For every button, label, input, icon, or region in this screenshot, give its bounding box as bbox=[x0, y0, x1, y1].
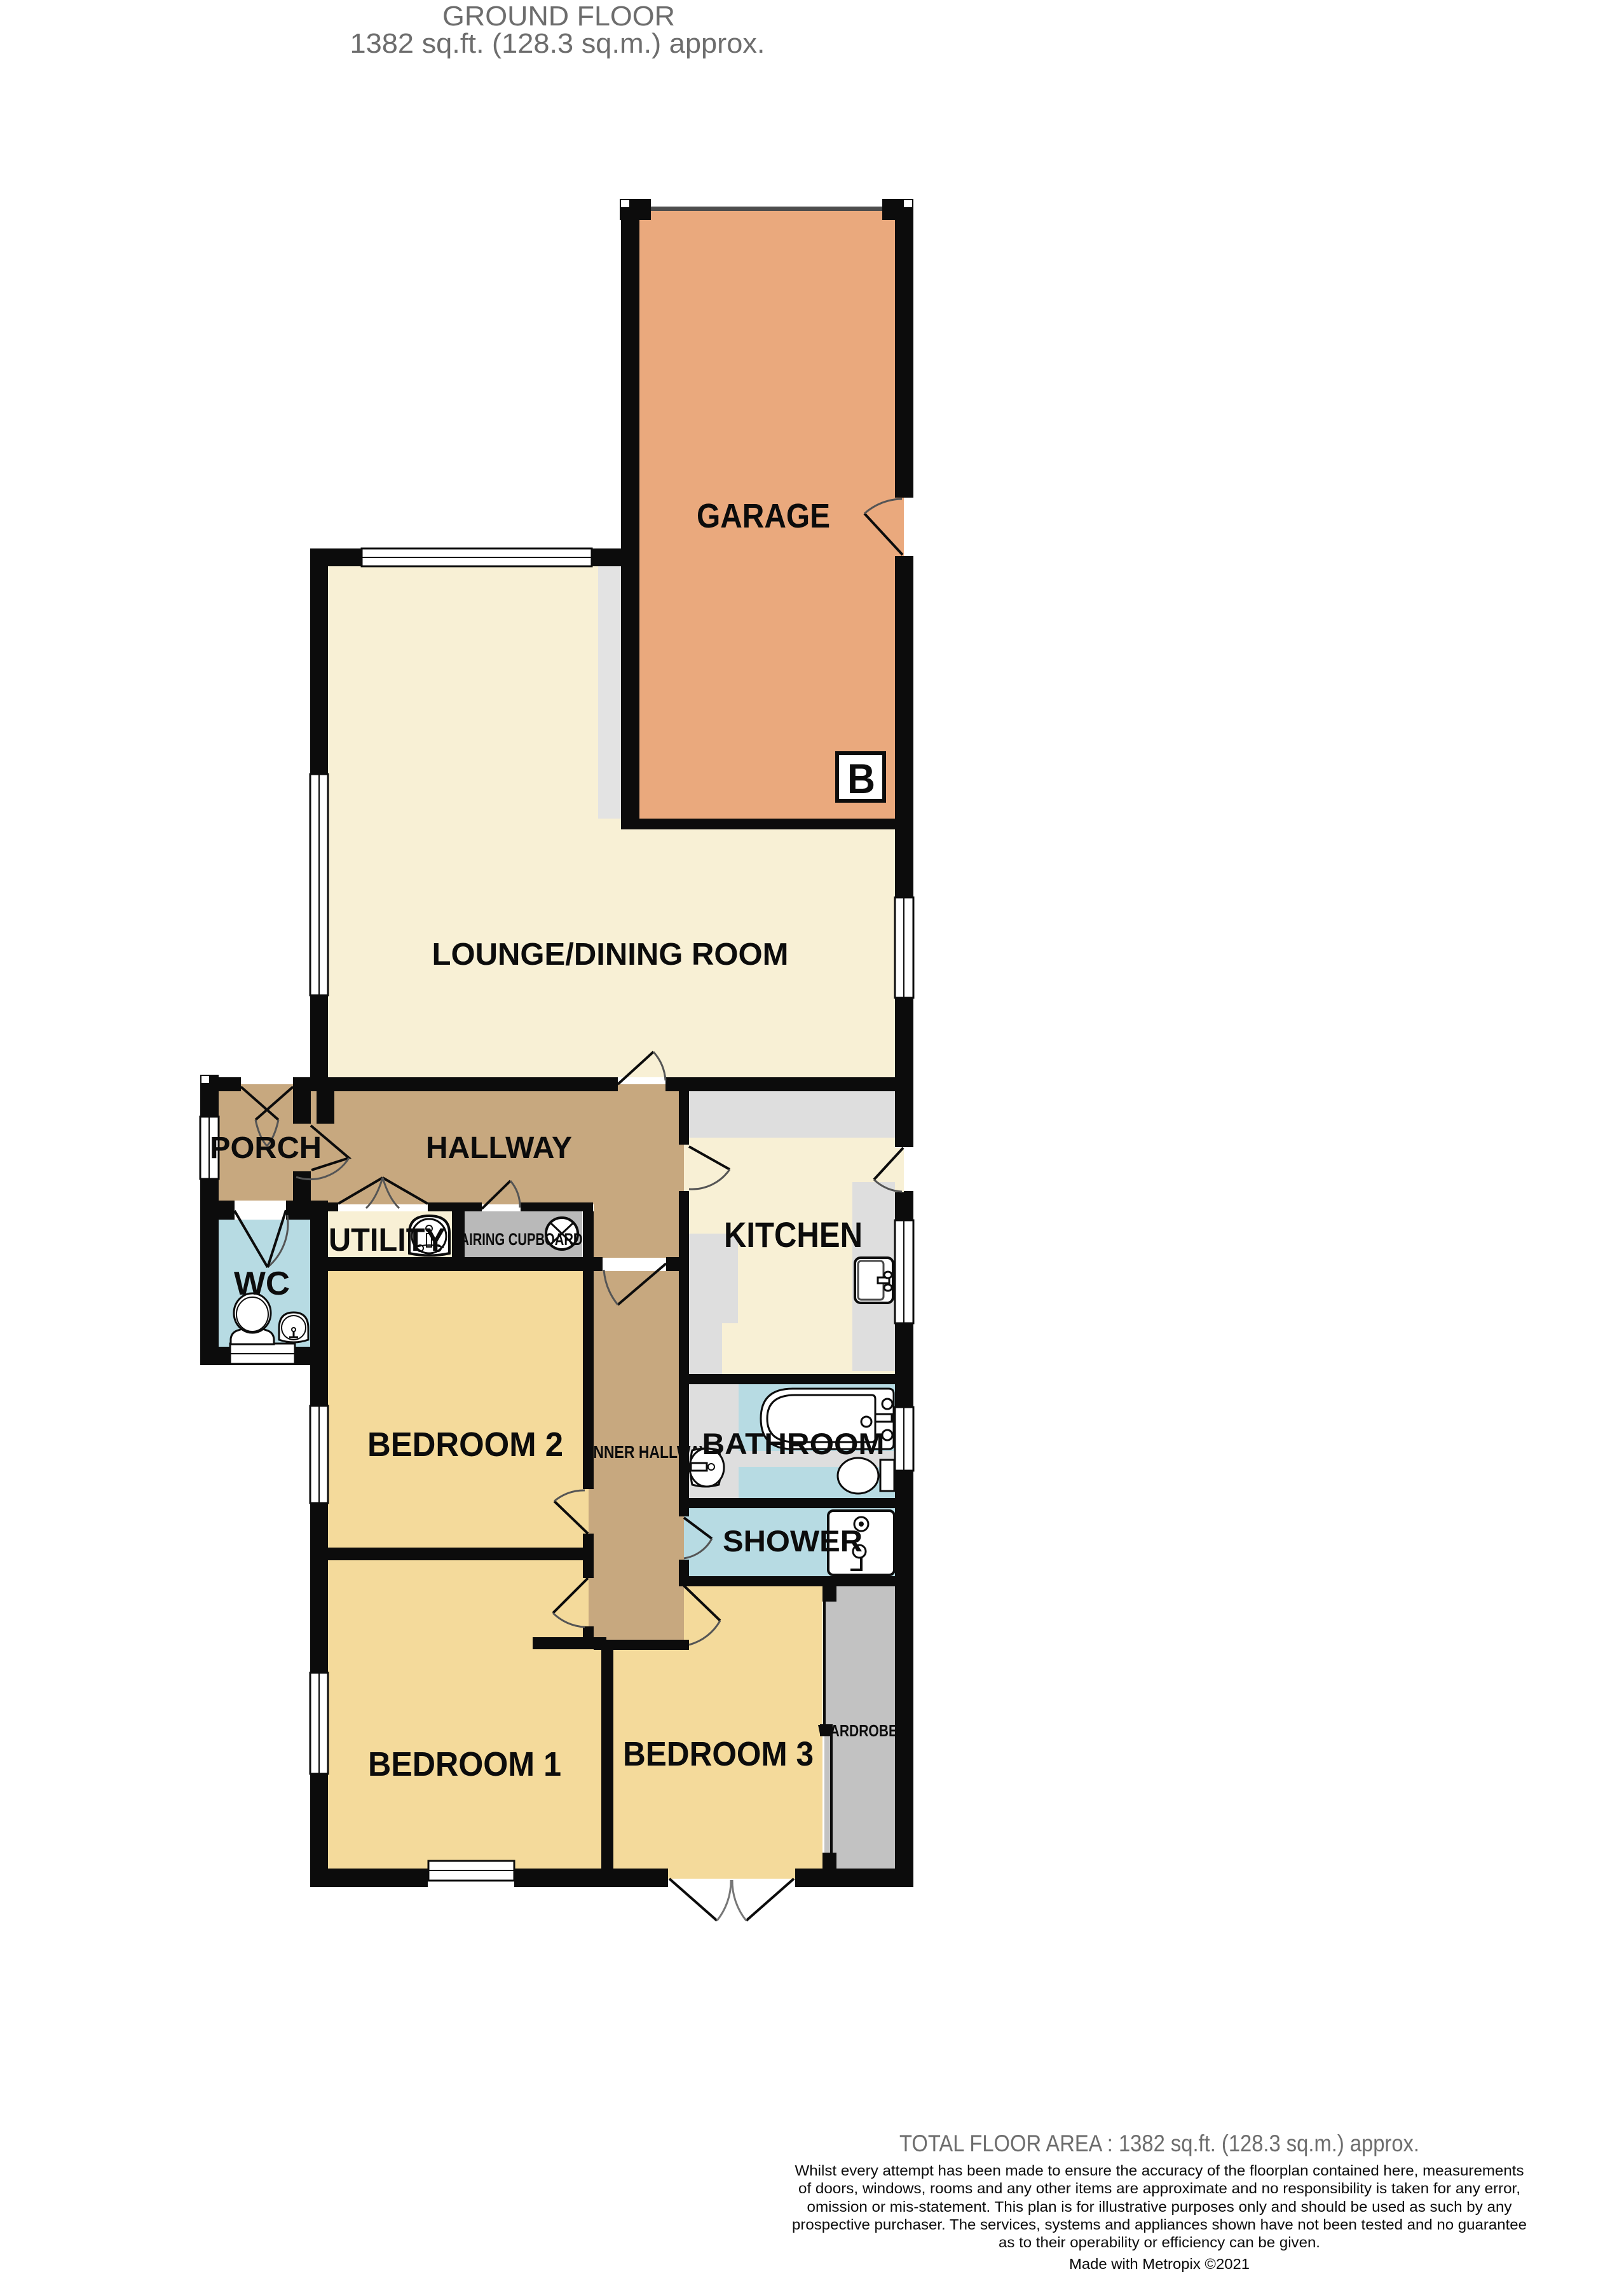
svg-text:UTILITY: UTILITY bbox=[329, 1222, 446, 1258]
svg-text:BEDROOM 1: BEDROOM 1 bbox=[368, 1745, 561, 1783]
svg-text:omission or mis-statement. Thi: omission or mis-statement. This plan is … bbox=[807, 2198, 1512, 2215]
svg-text:TOTAL FLOOR AREA : 1382 sq.ft.: TOTAL FLOOR AREA : 1382 sq.ft. (128.3 sq… bbox=[899, 2130, 1419, 2156]
svg-text:as to their operability or eff: as to their operability or efficiency ca… bbox=[999, 2234, 1320, 2250]
svg-text:BEDROOM 3: BEDROOM 3 bbox=[623, 1735, 814, 1773]
svg-text:SHOWER: SHOWER bbox=[723, 1524, 863, 1558]
svg-text:PORCH: PORCH bbox=[210, 1131, 322, 1165]
svg-text:AIRING CUPBOARD: AIRING CUPBOARD bbox=[460, 1230, 583, 1249]
svg-text:LOUNGE/DINING ROOM: LOUNGE/DINING ROOM bbox=[432, 937, 789, 972]
svg-text:1382 sq.ft. (128.3 sq.m.) appr: 1382 sq.ft. (128.3 sq.m.) approx. bbox=[350, 28, 765, 59]
svg-text:of doors, windows, rooms and a: of doors, windows, rooms and any other i… bbox=[798, 2180, 1520, 2196]
svg-text:BATHROOM: BATHROOM bbox=[702, 1427, 885, 1460]
svg-text:Made with Metropix ©2021: Made with Metropix ©2021 bbox=[1069, 2256, 1250, 2272]
svg-text:KITCHEN: KITCHEN bbox=[724, 1215, 863, 1255]
svg-text:WC: WC bbox=[234, 1265, 290, 1302]
svg-text:GARAGE: GARAGE bbox=[697, 497, 830, 535]
svg-text:Whilst every attempt has been: Whilst every attempt has been made to en… bbox=[795, 2162, 1524, 2179]
svg-text:BEDROOM 2: BEDROOM 2 bbox=[367, 1426, 563, 1464]
svg-text:B: B bbox=[847, 755, 875, 802]
svg-text:prospective purchaser. The ser: prospective purchaser. The services, sys… bbox=[792, 2216, 1527, 2233]
svg-text:GROUND FLOOR: GROUND FLOOR bbox=[442, 1, 675, 32]
svg-text:HALLWAY: HALLWAY bbox=[426, 1131, 572, 1165]
